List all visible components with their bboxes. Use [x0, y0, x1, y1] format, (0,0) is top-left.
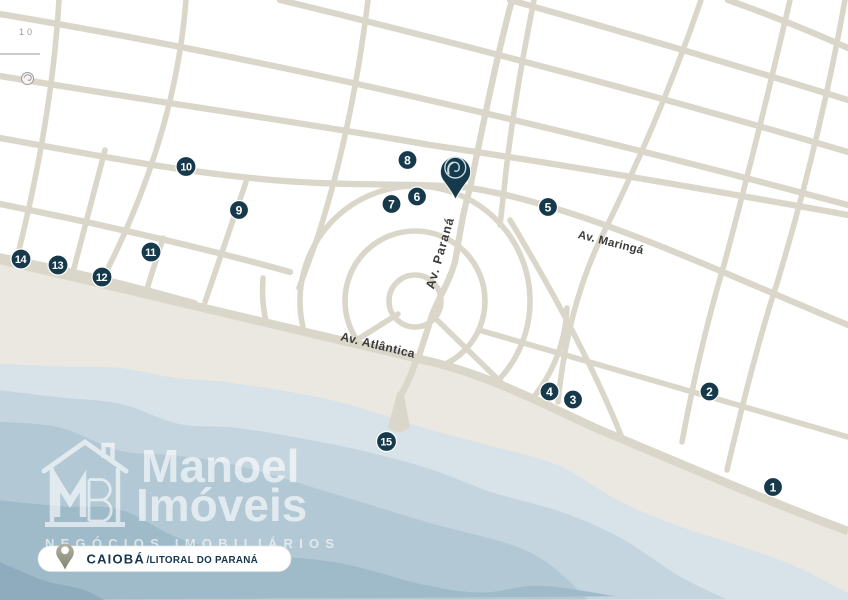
svg-text:11: 11	[145, 247, 156, 259]
svg-text:8: 8	[404, 154, 411, 168]
svg-text:7: 7	[388, 198, 395, 212]
svg-text:/LITORAL DO PARANÁ: /LITORAL DO PARANÁ	[147, 554, 259, 566]
svg-text:1: 1	[770, 481, 777, 495]
svg-text:15: 15	[380, 437, 392, 449]
svg-text:14: 14	[15, 254, 28, 266]
svg-text:10: 10	[19, 27, 35, 37]
svg-text:13: 13	[52, 260, 64, 272]
svg-text:3: 3	[570, 393, 577, 407]
svg-text:CAIOBÁ: CAIOBÁ	[87, 552, 145, 567]
svg-text:9: 9	[236, 204, 243, 218]
svg-text:Imóveis: Imóveis	[136, 479, 307, 531]
svg-text:5: 5	[545, 201, 552, 215]
svg-text:6: 6	[414, 190, 421, 204]
svg-text:4: 4	[546, 385, 553, 399]
svg-text:12: 12	[96, 272, 108, 284]
svg-text:2: 2	[706, 385, 713, 399]
svg-text:10: 10	[180, 162, 192, 174]
